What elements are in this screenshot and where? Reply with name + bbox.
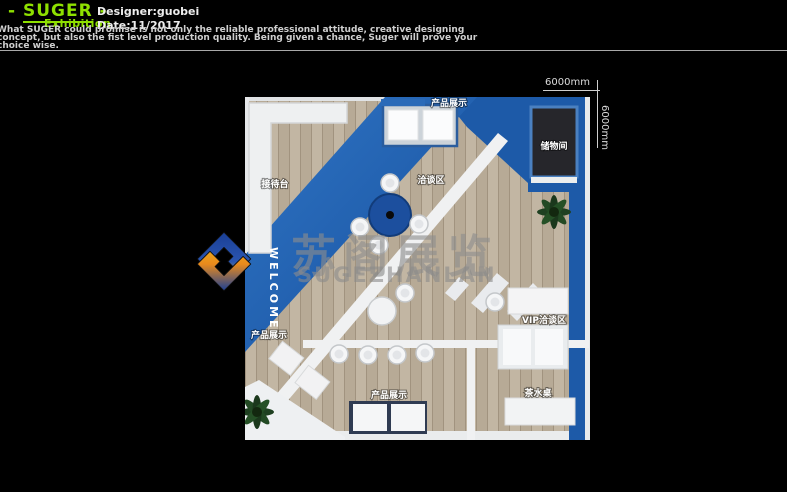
tea-counter	[505, 398, 575, 425]
label-storage: 储物间	[540, 140, 567, 152]
chair	[351, 218, 369, 236]
right-white-edge	[585, 97, 590, 440]
logo-hook-blue	[197, 232, 250, 285]
chair	[410, 215, 428, 233]
label-display-left: 产品展示	[251, 329, 287, 341]
label-tea: 茶水桌	[523, 387, 552, 399]
label-display-top: 产品展示	[431, 97, 467, 109]
brand-dash-left: -	[8, 1, 16, 21]
company-tagline: What SUGER could promise is not only the…	[0, 26, 477, 51]
storage-sill	[531, 177, 577, 183]
dimension-width-label: 6000mm	[545, 77, 590, 88]
chair	[388, 346, 406, 364]
label-meeting: 洽谈区	[417, 174, 444, 186]
chair	[396, 284, 414, 302]
sofa-cushion	[535, 329, 563, 365]
header-divider	[0, 50, 787, 51]
label-vip: VIP洽谈区	[522, 314, 566, 326]
chair	[330, 345, 348, 363]
chair	[370, 236, 388, 254]
display-sign	[381, 99, 425, 106]
chair	[416, 344, 434, 362]
vip-table	[508, 288, 568, 314]
display-table	[391, 404, 425, 431]
designer-label: Designer:guobei	[97, 5, 199, 19]
dimension-height-line	[597, 80, 598, 148]
dimension-height-label: 6000mm	[599, 105, 610, 150]
chair	[381, 174, 399, 192]
tagline-line-2: concept, but also the fist level product…	[0, 34, 477, 42]
sofa-cushion	[503, 329, 531, 365]
meeting-table-center	[386, 211, 394, 219]
vertical-wall	[467, 345, 475, 440]
label-reception: 接待台	[261, 178, 288, 190]
display-panel	[423, 110, 453, 140]
label-display-bottom: 产品展示	[371, 389, 407, 401]
chair	[359, 346, 377, 364]
display-panel	[388, 110, 418, 140]
presentation-board: { "header": { "brand": { "prefix": "-", …	[0, 0, 787, 492]
booth-floorplan: 接待台 产品展示 洽谈区 储物间 VIP洽谈区 产品展示 产品展示 茶水桌 WE…	[245, 97, 590, 440]
display-table	[353, 404, 387, 431]
label-welcome: WELCOME	[267, 247, 280, 331]
side-table	[368, 297, 396, 325]
logo-hook-gold	[197, 237, 250, 290]
plant	[537, 195, 571, 229]
dimension-width-line	[543, 90, 600, 91]
chair	[486, 293, 504, 311]
